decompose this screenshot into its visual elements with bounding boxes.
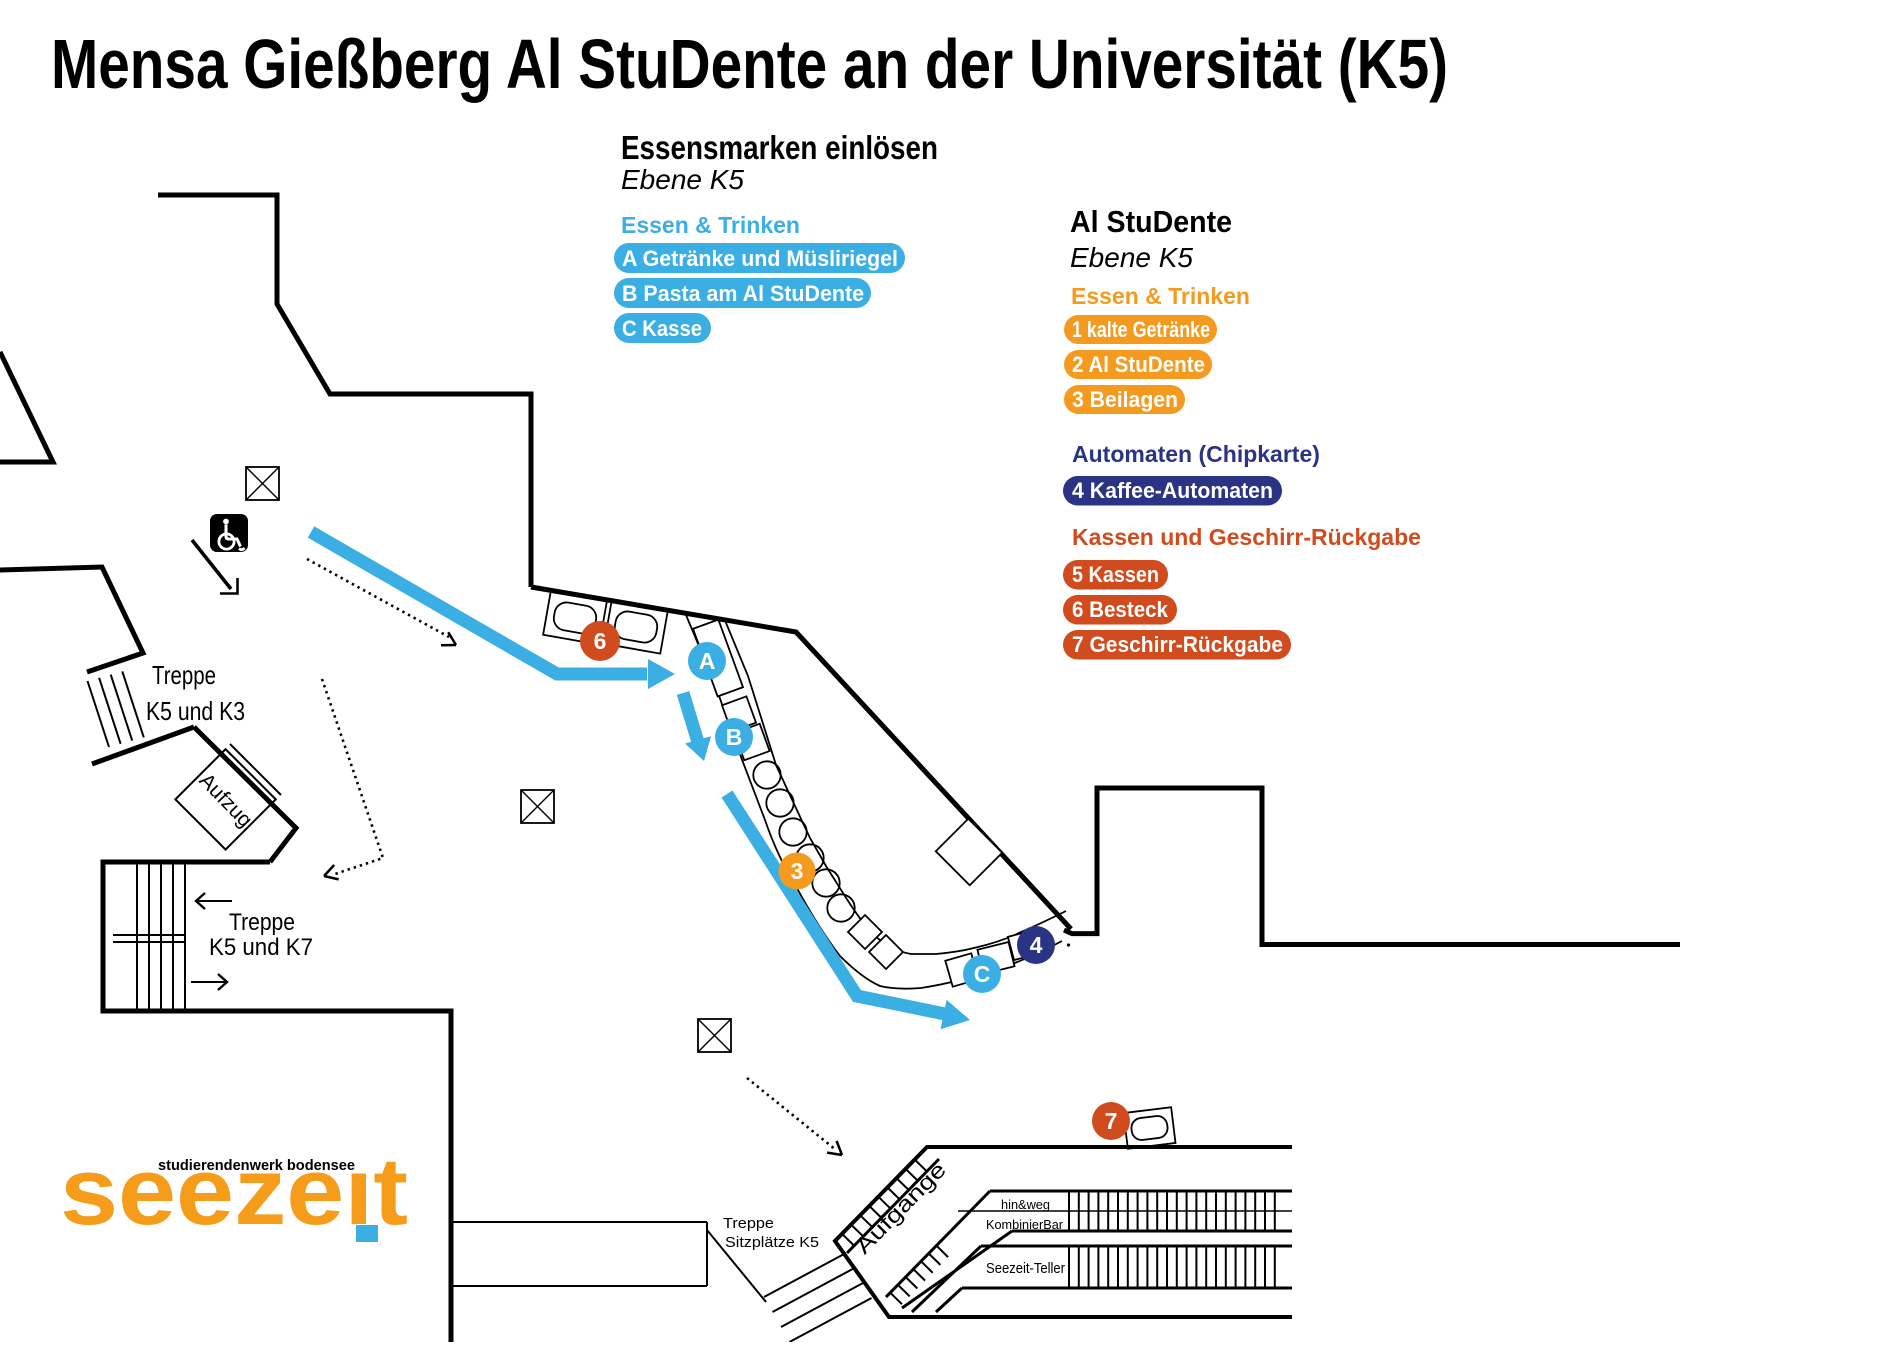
- svg-text:4: 4: [1030, 932, 1043, 958]
- svg-text:hin&weg: hin&weg: [1001, 1198, 1050, 1212]
- svg-text:Automaten (Chipkarte): Automaten (Chipkarte): [1072, 441, 1320, 467]
- svg-text:6: 6: [594, 628, 607, 654]
- svg-text:A Getränke und Müsliriegel: A Getränke und Müsliriegel: [622, 246, 898, 271]
- svg-text:Treppe: Treppe: [723, 1215, 774, 1232]
- svg-text:Essen & Trinken: Essen & Trinken: [1071, 283, 1250, 309]
- svg-text:B Pasta am Al StuDente: B Pasta am Al StuDente: [622, 281, 864, 306]
- svg-text:Essen & Trinken: Essen & Trinken: [621, 212, 800, 238]
- svg-text:2 Al StuDente: 2 Al StuDente: [1072, 352, 1205, 377]
- svg-text:Mensa Gießberg Al StuDente an: Mensa Gießberg Al StuDente an der Univer…: [51, 25, 1448, 103]
- svg-text:Treppe: Treppe: [229, 909, 295, 936]
- svg-text:1 kalte Getränke: 1 kalte Getränke: [1072, 317, 1210, 342]
- svg-text:Kassen und Geschirr-Rückgabe: Kassen und Geschirr-Rückgabe: [1072, 524, 1421, 550]
- svg-text:Ebene K5: Ebene K5: [1070, 242, 1193, 273]
- svg-text:C: C: [974, 961, 991, 987]
- svg-text:Essensmarken einlösen: Essensmarken einlösen: [621, 129, 938, 166]
- svg-text:7: 7: [1105, 1108, 1118, 1134]
- svg-text:seezeıt: seezeıt: [60, 1138, 408, 1245]
- svg-text:KombinierBar: KombinierBar: [986, 1217, 1064, 1232]
- svg-text:Treppe: Treppe: [152, 660, 216, 690]
- svg-text:Seezeit-Teller: Seezeit-Teller: [986, 1261, 1065, 1277]
- svg-text:Sitzplätze K5: Sitzplätze K5: [725, 1234, 819, 1251]
- svg-text:B: B: [726, 724, 743, 750]
- svg-text:4 Kaffee-Automaten: 4 Kaffee-Automaten: [1072, 478, 1273, 503]
- svg-text:3: 3: [791, 858, 804, 884]
- svg-text:3 Beilagen: 3 Beilagen: [1072, 387, 1178, 412]
- svg-text:K5 und K7: K5 und K7: [209, 934, 313, 961]
- svg-text:C Kasse: C Kasse: [622, 316, 702, 341]
- svg-text:A: A: [699, 648, 716, 674]
- svg-text:Al StuDente: Al StuDente: [1070, 204, 1232, 239]
- svg-text:K5 und K3: K5 und K3: [146, 696, 245, 726]
- svg-text:Ebene K5: Ebene K5: [621, 164, 744, 195]
- svg-text:6 Besteck: 6 Besteck: [1072, 597, 1169, 622]
- svg-text:7 Geschirr-Rückgabe: 7 Geschirr-Rückgabe: [1072, 632, 1283, 657]
- svg-text:5 Kassen: 5 Kassen: [1072, 562, 1159, 587]
